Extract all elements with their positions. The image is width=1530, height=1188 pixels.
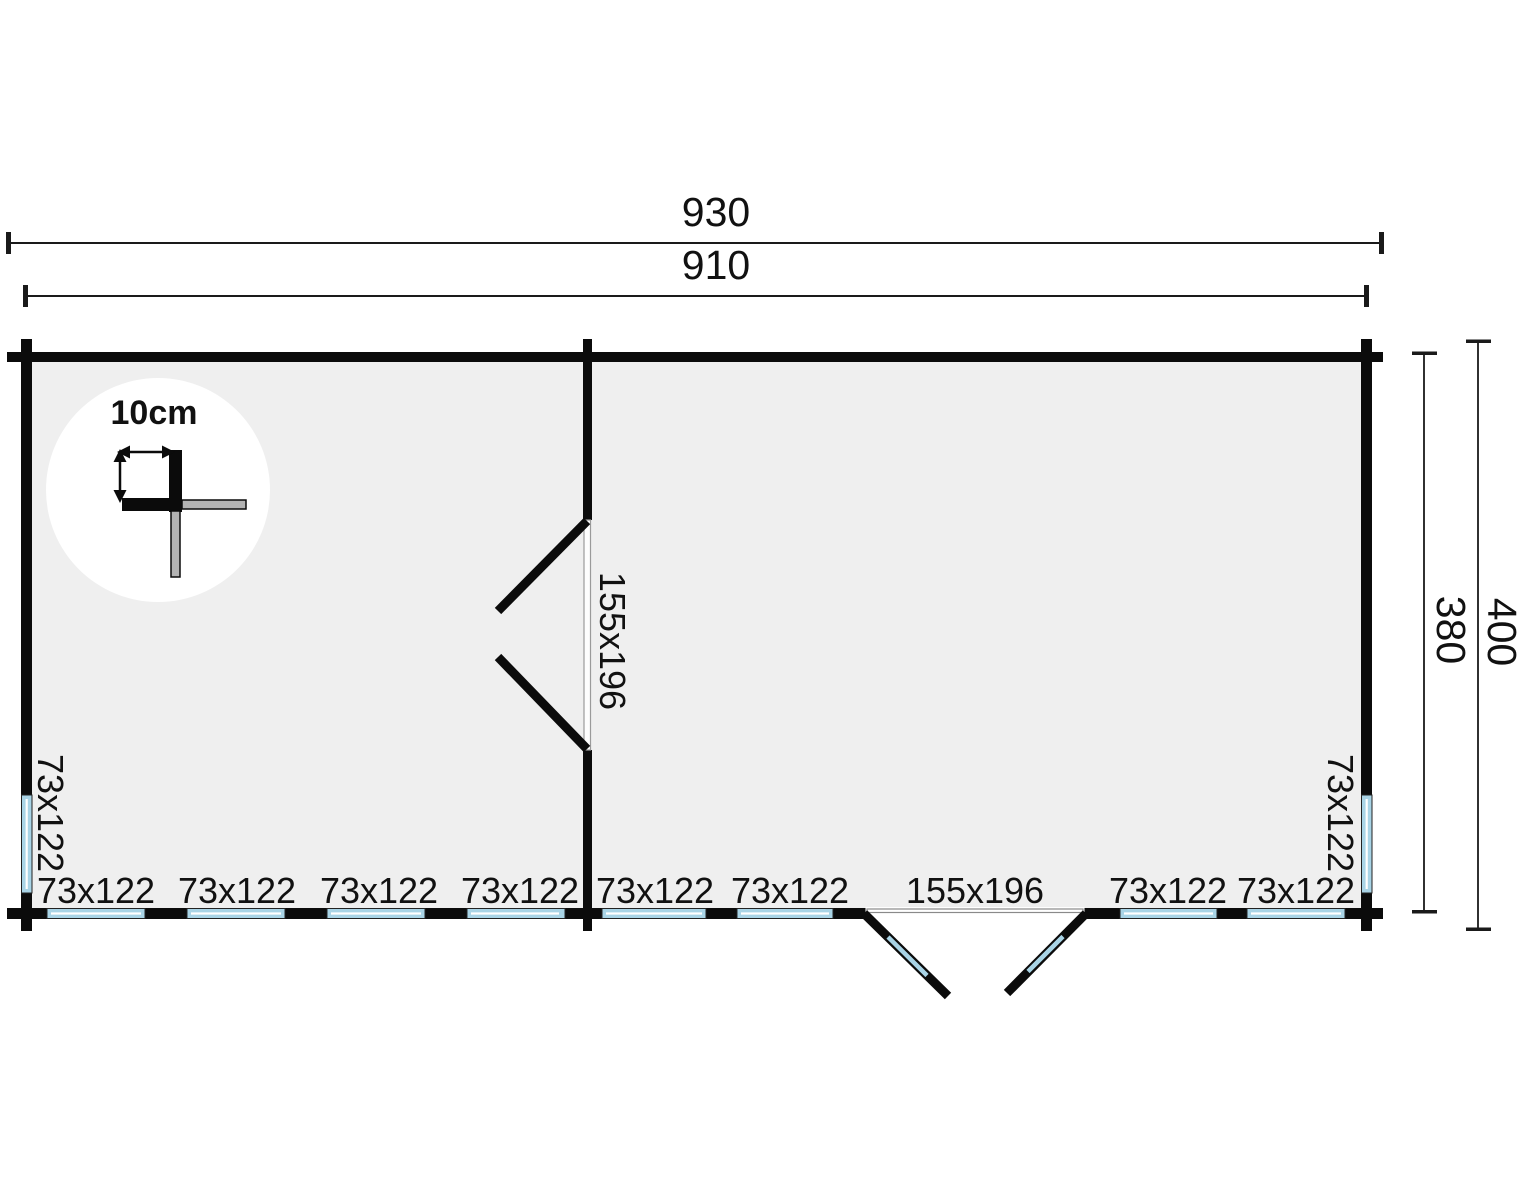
- floor-plan-drawing: 10cm: [0, 0, 1530, 1188]
- bottom-labels: 73x122 73x122 73x122 73x122 73x122 73x12…: [37, 870, 1355, 911]
- dim-400-label: 400: [1479, 598, 1525, 666]
- front-door-leaf-left-glazing: [888, 937, 927, 976]
- left-window-label: 73x122: [30, 754, 71, 872]
- detail-thickness-label: 10cm: [111, 394, 198, 432]
- detail-log-horizontal-black: [122, 498, 182, 511]
- divider-wall-lower: [583, 750, 592, 931]
- detail-log-horizontal-gray: [182, 500, 246, 509]
- dim-930-label: 930: [682, 189, 750, 235]
- window-label: 73x122: [1237, 870, 1355, 911]
- detail-log-vertical-gray: [171, 511, 180, 577]
- right-window-label: 73x122: [1320, 754, 1361, 872]
- front-door-leaf-right-glazing: [1028, 937, 1063, 972]
- window-label: 73x122: [596, 870, 714, 911]
- window-label: 73x122: [37, 870, 155, 911]
- window-label: 73x122: [320, 870, 438, 911]
- divider-wall-upper: [583, 339, 592, 520]
- wall-detail-inset: 10cm: [46, 378, 270, 602]
- front-door-label: 155x196: [906, 870, 1044, 911]
- interior-door-size-label: 155x196: [592, 572, 633, 710]
- front-door-leaves: [864, 914, 1086, 997]
- top-wall: [7, 352, 1383, 362]
- floor-plan-page: 10cm: [0, 0, 1530, 1188]
- right-side-window: [1362, 795, 1373, 893]
- interior-door-frame: [584, 520, 591, 750]
- window-label: 73x122: [178, 870, 296, 911]
- window-label: 73x122: [461, 870, 579, 911]
- dim-910-label: 910: [682, 242, 750, 288]
- window-label: 73x122: [731, 870, 849, 911]
- dimension-380: 380: [1412, 352, 1474, 914]
- window-label: 73x122: [1109, 870, 1227, 911]
- dimension-910: 910: [23, 242, 1369, 307]
- dim-380-label: 380: [1428, 596, 1474, 664]
